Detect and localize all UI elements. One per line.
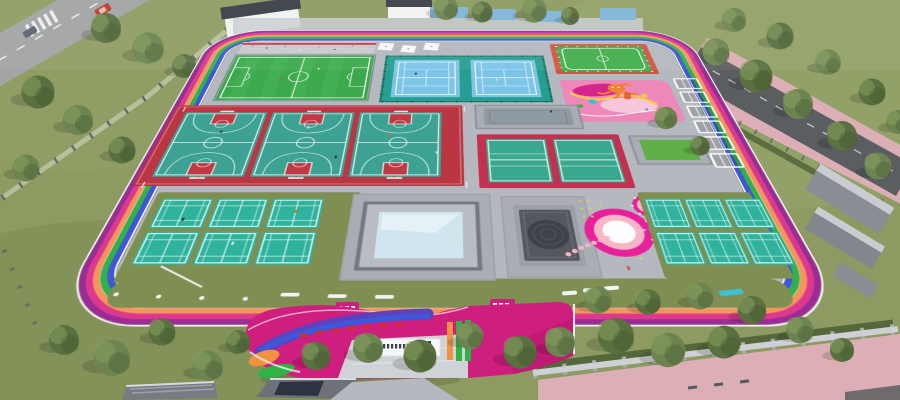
sports-park-aerial-render <box>0 0 900 400</box>
haze <box>0 0 900 70</box>
tree-inner-2 <box>684 136 710 156</box>
gate-roof-dark <box>274 381 324 396</box>
tree-inner-1 <box>647 107 677 130</box>
foreground-layer <box>0 0 900 400</box>
